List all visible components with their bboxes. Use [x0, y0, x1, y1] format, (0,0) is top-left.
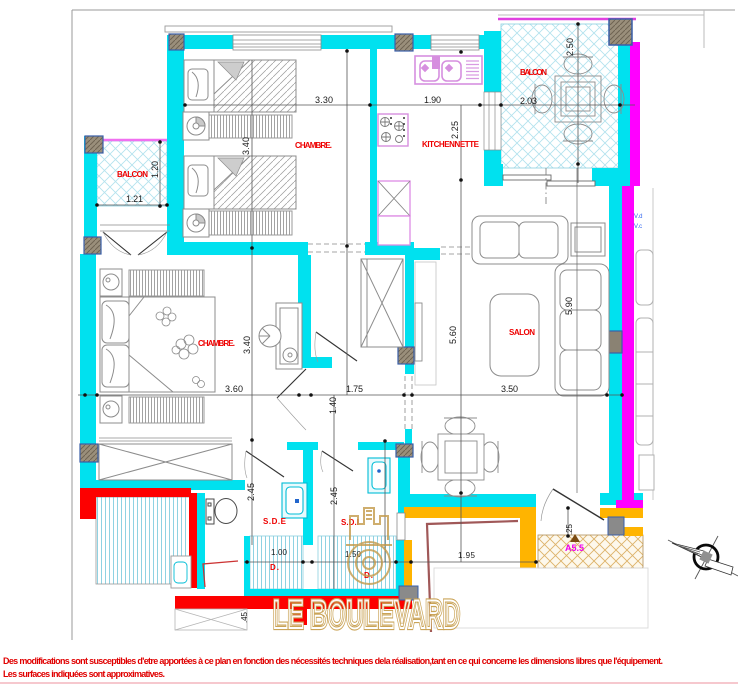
svg-text:3.40: 3.40 [241, 137, 251, 155]
svg-text:1.20: 1.20 [150, 161, 160, 178]
svg-text:3.50: 3.50 [501, 384, 518, 394]
svg-text:BALCON: BALCON [520, 68, 547, 77]
svg-text:S.D.E: S.D.E [263, 517, 287, 526]
svg-text:LE BOULEVARD: LE BOULEVARD [273, 593, 460, 637]
svg-text:2.03: 2.03 [520, 96, 537, 106]
svg-text:CHAMBRE.: CHAMBRE. [295, 141, 332, 150]
svg-text:V.d: V.d [634, 214, 642, 220]
svg-text:1.75: 1.75 [346, 384, 363, 394]
svg-text:SALON: SALON [509, 328, 535, 337]
svg-text:Des modifications sont suscept: Des modifications sont susceptibles d'et… [3, 656, 663, 666]
svg-text:.25: .25 [565, 523, 574, 535]
svg-text:.45: .45 [240, 611, 249, 623]
svg-text:2.25: 2.25 [450, 121, 460, 139]
svg-text:1.90: 1.90 [424, 95, 441, 105]
svg-text:5.90: 5.90 [564, 297, 574, 315]
svg-text:A5.5: A5.5 [565, 543, 584, 553]
svg-text:2.45: 2.45 [329, 487, 339, 505]
svg-text:3.40: 3.40 [242, 336, 252, 354]
svg-text:1.00: 1.00 [271, 548, 288, 557]
svg-text:3.30: 3.30 [315, 95, 333, 105]
svg-text:1.40: 1.40 [328, 397, 338, 414]
svg-text:5.60: 5.60 [448, 326, 458, 344]
svg-text:1.95: 1.95 [458, 551, 476, 560]
svg-text:3.60: 3.60 [225, 384, 243, 394]
svg-text:D.: D. [270, 563, 279, 572]
svg-text:CHAMBRE.: CHAMBRE. [198, 339, 235, 348]
svg-text:BALCON: BALCON [117, 170, 148, 179]
svg-text:V.c: V.c [634, 224, 642, 230]
svg-text:KITCHENNETTE: KITCHENNETTE [422, 140, 480, 149]
svg-text:2.45: 2.45 [246, 483, 256, 501]
svg-text:1.21: 1.21 [126, 194, 143, 204]
svg-text:2.50: 2.50 [565, 38, 575, 56]
svg-text:Les surfaces indiquées sont ap: Les surfaces indiquées sont approximativ… [3, 669, 165, 679]
